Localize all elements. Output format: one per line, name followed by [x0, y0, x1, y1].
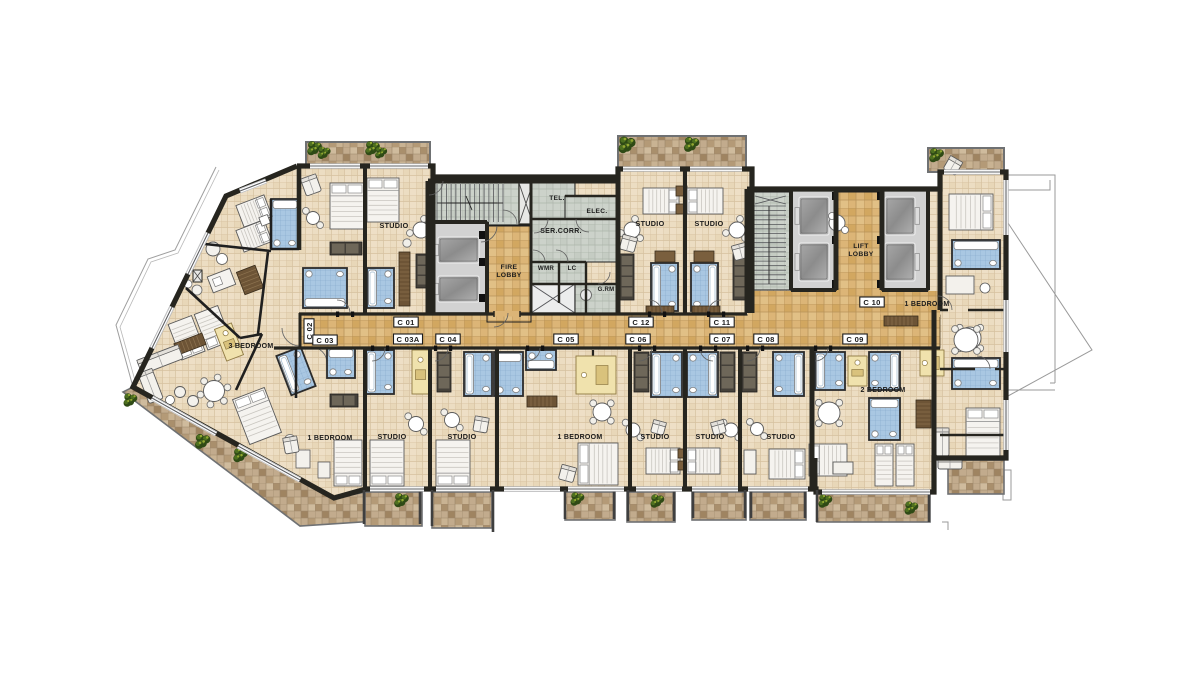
svg-text:STUDIO: STUDIO: [767, 432, 796, 441]
svg-text:C 07: C 07: [713, 335, 730, 344]
svg-text:STUDIO: STUDIO: [696, 432, 725, 441]
svg-text:C 01: C 01: [397, 318, 415, 327]
svg-text:C 11: C 11: [714, 318, 731, 327]
svg-text:LOBBY: LOBBY: [496, 272, 521, 279]
svg-text:STUDIO: STUDIO: [448, 432, 477, 441]
svg-text:2 BEDROOM: 2 BEDROOM: [860, 387, 905, 394]
svg-text:LIFT: LIFT: [853, 243, 869, 250]
svg-text:C 08: C 08: [757, 335, 774, 344]
svg-text:1 BEDROOM: 1 BEDROOM: [557, 434, 602, 441]
svg-text:WMR: WMR: [538, 265, 555, 272]
svg-text:LOBBY: LOBBY: [848, 251, 873, 258]
svg-text:1 BEDROOM: 1 BEDROOM: [307, 435, 352, 442]
svg-text:3 BEDROOM: 3 BEDROOM: [228, 343, 273, 350]
svg-text:1 BEDROOM: 1 BEDROOM: [904, 301, 949, 308]
svg-text:C 10: C 10: [863, 298, 880, 307]
svg-text:ELEC.: ELEC.: [587, 208, 608, 215]
svg-text:STUDIO: STUDIO: [380, 221, 409, 230]
svg-text:STUDIO: STUDIO: [695, 219, 724, 228]
svg-text:C 09: C 09: [846, 335, 863, 344]
svg-text:STUDIO: STUDIO: [378, 432, 407, 441]
svg-text:FIRE: FIRE: [501, 264, 518, 271]
svg-text:C 03: C 03: [316, 336, 333, 345]
svg-text:C 05: C 05: [557, 335, 575, 344]
svg-text:C 12: C 12: [632, 318, 649, 327]
svg-text:SER.CORR.: SER.CORR.: [540, 228, 582, 235]
svg-text:C 04: C 04: [439, 335, 457, 344]
svg-text:TEL.: TEL.: [549, 195, 565, 202]
svg-text:LC: LC: [568, 265, 577, 272]
svg-text:C 06: C 06: [629, 335, 646, 344]
svg-text:G.RM: G.RM: [598, 287, 615, 293]
svg-text:C 03A: C 03A: [396, 335, 419, 344]
svg-text:STUDIO: STUDIO: [641, 432, 670, 441]
svg-text:STUDIO: STUDIO: [636, 219, 665, 228]
